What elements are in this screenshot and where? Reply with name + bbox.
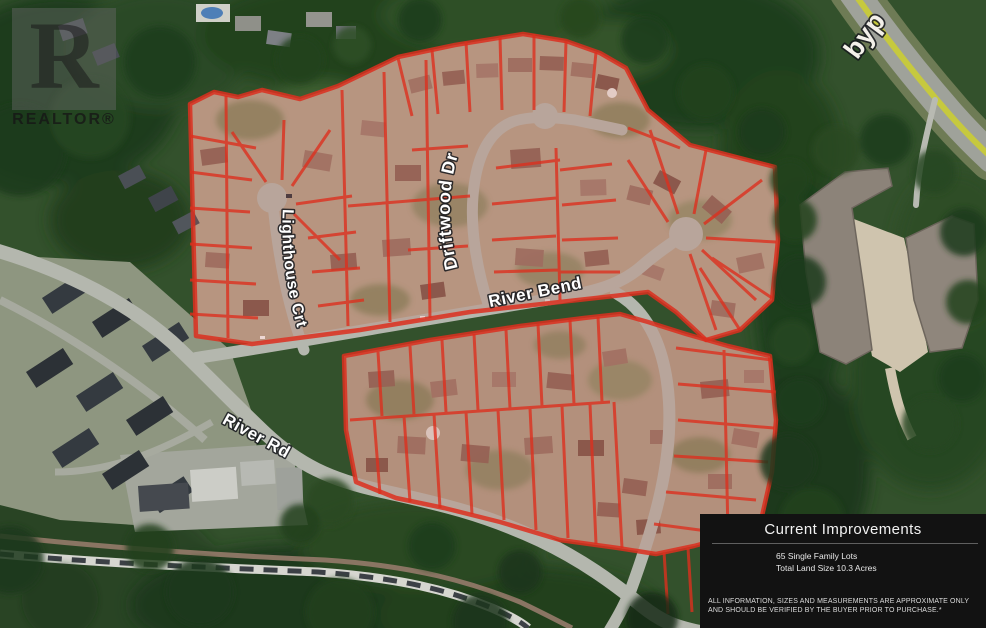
panel-detail-size: Total Land Size 10.3 Acres	[776, 562, 986, 574]
panel-title: Current Improvements	[700, 521, 986, 538]
panel-divider	[712, 543, 978, 544]
listing-photo: Driftwood Dr Lighthouse Crt River Bend R…	[0, 0, 986, 628]
realtor-logo-box: R	[12, 8, 116, 110]
realtor-watermark: R REALTOR®	[8, 8, 120, 129]
panel-disclaimer: ALL INFORMATION, SIZES AND MEASUREMENTS …	[708, 597, 976, 615]
realtor-logo-r: R	[29, 8, 98, 104]
current-improvements-panel: Current Improvements 65 Single Family Lo…	[700, 514, 986, 628]
panel-detail-lots: 65 Single Family Lots	[776, 550, 986, 562]
realtor-wordmark: REALTOR®	[8, 111, 120, 129]
panel-details: 65 Single Family Lots Total Land Size 10…	[776, 550, 986, 574]
